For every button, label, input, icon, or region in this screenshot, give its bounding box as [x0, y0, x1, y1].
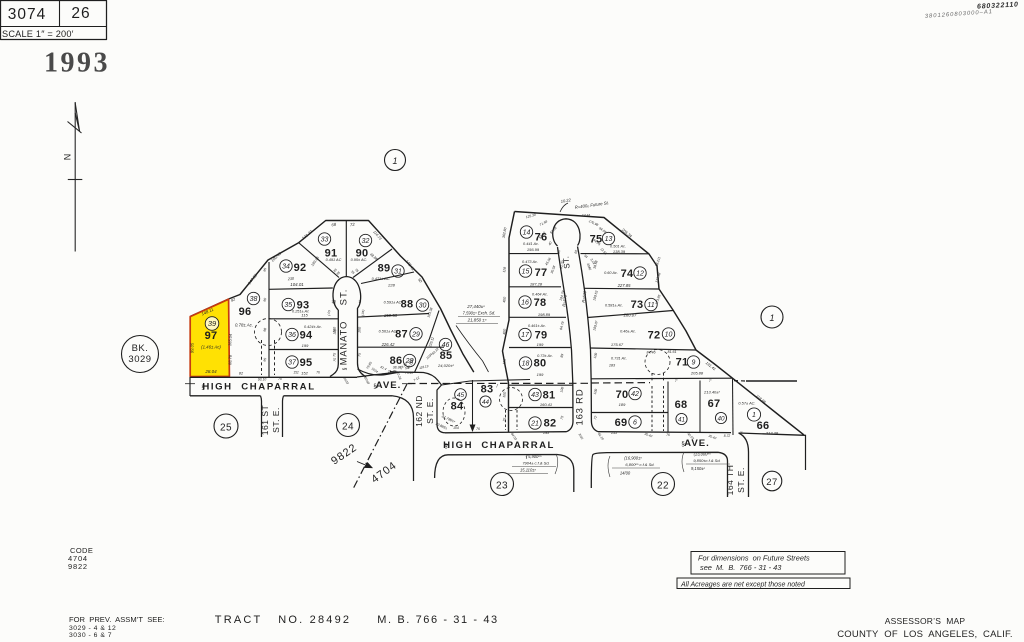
svg-text:(.05: (.05	[327, 310, 331, 316]
svg-text:160.41: 160.41	[540, 402, 552, 407]
svg-text:78: 78	[534, 297, 547, 309]
svg-text:⌈: ⌈	[496, 383, 498, 388]
svg-text:30.58: 30.58	[550, 265, 557, 274]
svg-text:199: 199	[302, 343, 309, 348]
svg-text:60: 60	[557, 250, 562, 254]
svg-text:213.40±ⁿ: 213.40±ⁿ	[703, 390, 720, 395]
svg-text:35: 35	[284, 302, 292, 309]
svg-text:75: 75	[560, 415, 565, 420]
svg-text:R=400₀ Future St.: R=400₀ Future St.	[574, 200, 609, 210]
svg-text:161.41: 161.41	[705, 361, 717, 371]
svg-text:82: 82	[239, 372, 244, 376]
svg-text:0.473 Ac.: 0.473 Ac.	[522, 260, 538, 264]
svg-text:45.06: 45.06	[544, 257, 552, 266]
svg-text:73.40: 73.40	[405, 371, 413, 375]
svg-text:95: 95	[263, 358, 268, 363]
svg-text:400: 400	[502, 297, 507, 303]
svg-text:17: 17	[521, 332, 530, 339]
svg-text:3030 - 6 & 7: 3030 - 6 & 7	[69, 632, 112, 639]
svg-text:15: 15	[522, 269, 530, 276]
svg-text:45: 45	[457, 392, 465, 399]
svg-text:88.78: 88.78	[227, 354, 233, 365]
svg-text:13: 13	[605, 236, 613, 243]
svg-text:99.05: 99.05	[190, 342, 195, 353]
svg-text:100: 100	[502, 392, 507, 398]
svg-text:226.42: 226.42	[381, 342, 395, 347]
svg-text:118.19: 118.19	[419, 364, 429, 370]
svg-text:212.38: 212.38	[765, 431, 779, 436]
svg-text:ST. E.: ST. E.	[271, 407, 281, 433]
svg-text:68: 68	[331, 222, 337, 228]
svg-text:92: 92	[294, 262, 307, 274]
svg-text:16: 16	[521, 300, 529, 307]
svg-text:104: 104	[453, 426, 459, 430]
svg-text:§: §	[343, 367, 349, 370]
svg-text:3029 - 4 & 12: 3029 - 4 & 12	[69, 625, 116, 632]
svg-text:100: 100	[502, 359, 507, 365]
svg-text:❴5,900ⁿⁿ: ❴5,900ⁿⁿ	[525, 454, 542, 459]
svg-text:COUNTY OF LOS ANGELES, CAL: COUNTY OF LOS ANGELES, CALIF.	[837, 629, 1013, 640]
svg-text:36: 36	[288, 332, 296, 339]
svg-text:(1.46± Ac): (1.46± Ac)	[201, 345, 221, 350]
svg-text:89: 89	[378, 263, 391, 275]
svg-text:72: 72	[593, 415, 598, 420]
svg-text:8½0: 8½0	[578, 433, 585, 441]
svg-text:14.44: 14.44	[582, 214, 590, 218]
svg-text:24: 24	[342, 422, 354, 433]
svg-text:189: 189	[619, 402, 626, 407]
svg-text:96: 96	[239, 306, 252, 318]
svg-text:81.4: 81.4	[380, 365, 388, 371]
svg-text:0.581± Ac.: 0.581± Ac.	[605, 304, 623, 308]
svg-text:1034: 1034	[371, 367, 379, 374]
svg-text:0.561± AC.: 0.561± AC.	[379, 330, 398, 334]
svg-text:175.67: 175.67	[611, 342, 624, 347]
svg-text:FOR PREV. ASSM’T SEE:: FOR PREV. ASSM’T SEE:	[69, 615, 165, 624]
svg-text:9: 9	[692, 360, 696, 367]
svg-text:28.04: 28.04	[204, 369, 217, 374]
svg-text:205.88: 205.88	[690, 371, 704, 376]
svg-text:ST.: ST.	[339, 289, 350, 306]
svg-text:§: §	[444, 444, 447, 450]
svg-text:40: 40	[717, 415, 725, 422]
svg-text:0.46± Ac.: 0.46± Ac.	[620, 330, 636, 334]
svg-text:81.61: 81.61	[668, 350, 677, 354]
svg-text:187.28: 187.28	[530, 282, 543, 287]
svg-text:280.07: 280.07	[623, 313, 637, 318]
svg-text:75: 75	[502, 418, 507, 423]
svg-text:0.424± Ac.: 0.424± Ac.	[304, 325, 322, 329]
svg-text:199: 199	[537, 342, 544, 347]
svg-text:0.591± AC.: 0.591± AC.	[384, 301, 403, 305]
svg-text:6,800ⁿⁿ c.f.& Sd.: 6,800ⁿⁿ c.f.& Sd.	[625, 462, 654, 467]
svg-text:26: 26	[71, 5, 90, 22]
svg-text:27,440±ⁿ: 27,440±ⁿ	[466, 304, 485, 309]
svg-text:40: 40	[358, 300, 362, 304]
svg-text:164 TH: 164 TH	[725, 465, 735, 496]
svg-text:81.19: 81.19	[597, 432, 605, 441]
svg-text:ST. E.: ST. E.	[736, 467, 746, 493]
svg-text:7904± c.f.& Sd.: 7904± c.f.& Sd.	[522, 461, 549, 466]
svg-text:33: 33	[321, 237, 329, 244]
svg-text:218.68: 218.68	[754, 393, 767, 404]
svg-text:69: 69	[615, 417, 628, 429]
svg-text:§: §	[201, 385, 204, 391]
svg-text:0.731 Ac.: 0.731 Ac.	[611, 357, 627, 361]
svg-text:N: N	[63, 154, 73, 161]
svg-text:7′: 7′	[675, 379, 678, 383]
svg-text:0.78± Ac.: 0.78± Ac.	[235, 323, 253, 328]
svg-text:All Acreages are net except th: All Acreages are net except those noted	[680, 581, 806, 588]
svg-text:SCALE 1″ = 200′: SCALE 1″ = 200′	[2, 29, 74, 39]
svg-text:34: 34	[282, 264, 290, 271]
svg-text:75: 75	[332, 353, 336, 357]
svg-text:44: 44	[482, 399, 490, 406]
svg-text:3029: 3029	[128, 354, 151, 365]
svg-text:30: 30	[419, 303, 427, 310]
svg-text:100: 100	[593, 388, 598, 395]
svg-text:38: 38	[250, 296, 258, 303]
svg-text:3046: 3046	[586, 263, 592, 271]
svg-text:21,850 ±ⁿ: 21,850 ±ⁿ	[467, 318, 487, 323]
svg-text:39: 39	[208, 319, 217, 328]
svg-text:162 ND: 162 ND	[414, 395, 424, 427]
svg-text:23: 23	[496, 481, 508, 492]
svg-text:(2.58: (2.58	[600, 247, 608, 255]
svg-text:9,150±ⁿ: 9,150±ⁿ	[691, 466, 705, 471]
svg-text:152: 152	[301, 371, 308, 376]
svg-text:9,850±c.f.& Sd.: 9,850±c.f.& Sd.	[693, 458, 720, 463]
svg-text:228: 228	[387, 283, 395, 288]
svg-text:22: 22	[657, 481, 669, 492]
svg-text:71.68: 71.68	[539, 219, 548, 227]
svg-text:18: 18	[522, 361, 530, 368]
svg-text:199: 199	[537, 372, 544, 377]
svg-text:75: 75	[357, 353, 361, 357]
svg-text:72: 72	[350, 222, 356, 228]
svg-text:76: 76	[666, 433, 670, 437]
svg-text:100.07: 100.07	[592, 320, 599, 331]
svg-text:227.85: 227.85	[617, 283, 631, 288]
svg-text:MANATO: MANATO	[339, 321, 349, 365]
svg-text:34: 34	[583, 254, 589, 260]
svg-text:94: 94	[300, 330, 313, 342]
svg-text:362.80: 362.80	[502, 227, 508, 238]
svg-text:71: 71	[676, 357, 689, 369]
svg-text:97: 97	[205, 330, 218, 342]
svg-text:7′: 7′	[709, 379, 712, 383]
svg-text:138.39: 138.39	[613, 249, 626, 254]
svg-text:3801260803000–A1: 3801260803000–A1	[925, 9, 993, 20]
svg-text:230: 230	[287, 277, 296, 282]
svg-text:118: 118	[502, 267, 507, 273]
svg-text:170.98: 170.98	[588, 219, 599, 227]
svg-text:70: 70	[278, 377, 282, 381]
svg-text:79: 79	[535, 330, 548, 342]
svg-text:88.211: 88.211	[655, 256, 662, 267]
svg-text:40: 40	[547, 241, 552, 246]
svg-text:20½8: 20½8	[363, 375, 371, 385]
svg-text:ST. E.: ST. E.	[425, 398, 435, 424]
svg-text:73: 73	[631, 299, 644, 311]
svg-text:116.73: 116.73	[372, 230, 382, 241]
svg-text:143.41: 143.41	[404, 259, 415, 272]
svg-text:29: 29	[411, 331, 420, 338]
svg-text:74: 74	[621, 268, 634, 280]
svg-text:(13,000ⁿⁿ: (13,000ⁿⁿ	[694, 452, 711, 457]
svg-text:10.22: 10.22	[560, 197, 571, 204]
svg-text:183: 183	[609, 364, 616, 368]
svg-text:0.464 Ac.: 0.464 Ac.	[532, 293, 548, 297]
svg-text:165.04: 165.04	[227, 333, 233, 346]
svg-text:83.19: 83.19	[431, 347, 440, 356]
svg-text:163 RD: 163 RD	[575, 388, 586, 425]
svg-text:104.01: 104.01	[290, 282, 304, 287]
svg-text:§: §	[681, 442, 684, 448]
svg-text:83: 83	[481, 384, 494, 396]
svg-text:3′: 3′	[740, 431, 743, 435]
svg-text:For dimensions on Future Stre: For dimensions on Future Streets	[698, 554, 810, 563]
svg-text:152: 152	[293, 371, 299, 375]
svg-text:46: 46	[442, 342, 450, 349]
svg-text:156.99: 156.99	[527, 247, 540, 252]
svg-text:41: 41	[678, 416, 685, 423]
svg-text:24,020±ⁿ: 24,020±ⁿ	[437, 363, 454, 368]
svg-text:see M. B. 766 - 31 - 43: see M. B. 766 - 31 - 43	[700, 563, 782, 572]
svg-text:11: 11	[647, 302, 654, 309]
svg-text:23,885±: 23,885±	[434, 421, 448, 430]
svg-text:M. B. 766 - 31 - 43: M. B. 766 - 31 - 43	[377, 614, 499, 626]
svg-text:0.73± Ac.: 0.73± Ac.	[537, 354, 553, 358]
svg-text:12: 12	[636, 271, 644, 278]
svg-text:42: 42	[631, 391, 639, 398]
svg-text:0.491 AC: 0.491 AC	[326, 258, 342, 262]
svg-text:113.98: 113.98	[655, 272, 662, 283]
svg-text:76: 76	[476, 427, 480, 431]
svg-text:7,590±ⁿ Exch. Sd.: 7,590±ⁿ Exch. Sd.	[463, 311, 496, 316]
svg-text:100: 100	[332, 329, 337, 335]
svg-text:98: 98	[333, 300, 338, 304]
svg-text:AVE.: AVE.	[684, 438, 710, 449]
svg-text:15,110±ⁿ: 15,110±ⁿ	[520, 468, 536, 473]
svg-text:14/00: 14/00	[620, 471, 631, 476]
svg-text:0.461± Ac.: 0.461± Ac.	[528, 324, 546, 328]
svg-text:85: 85	[440, 350, 453, 362]
svg-text:35: 35	[354, 268, 359, 273]
svg-text:93.10: 93.10	[258, 378, 267, 382]
svg-text:173.85: 173.85	[655, 294, 662, 305]
svg-text:80: 80	[534, 358, 547, 370]
svg-text:21: 21	[530, 421, 539, 428]
svg-text:30.40: 30.40	[644, 432, 653, 439]
svg-text:0.60 Ac.: 0.60 Ac.	[604, 271, 618, 275]
svg-text:151: 151	[611, 431, 617, 435]
svg-text:32: 32	[362, 238, 370, 245]
svg-text:43: 43	[531, 392, 539, 399]
svg-text:67: 67	[708, 398, 721, 410]
svg-text:1: 1	[392, 156, 397, 166]
svg-text:72: 72	[648, 330, 661, 342]
svg-text:193: 193	[543, 431, 550, 435]
svg-text:(.04): (.04)	[361, 309, 366, 316]
svg-text:TRACT NO. 28492: TRACT NO. 28492	[215, 614, 351, 626]
svg-text:98: 98	[263, 328, 268, 333]
svg-text:3074: 3074	[8, 6, 46, 23]
svg-text:75: 75	[333, 358, 338, 362]
svg-text:9822: 9822	[329, 442, 359, 468]
svg-text:21,780±ⁿ: 21,780±ⁿ	[440, 414, 456, 424]
svg-text:70: 70	[616, 389, 629, 401]
svg-text:AVE.: AVE.	[376, 380, 402, 391]
svg-text:27: 27	[766, 477, 778, 488]
svg-text:100.53: 100.53	[592, 290, 599, 301]
svg-text:161 ST: 161 ST	[260, 405, 270, 435]
svg-text:125.30: 125.30	[525, 213, 536, 220]
svg-text:198.89: 198.89	[538, 312, 551, 317]
svg-text:115: 115	[301, 313, 308, 318]
svg-text:89: 89	[560, 353, 565, 358]
svg-text:82: 82	[544, 418, 557, 430]
svg-text:§: §	[373, 384, 376, 390]
svg-text:95: 95	[300, 357, 313, 369]
svg-text:9822: 9822	[68, 562, 88, 571]
svg-text:37: 37	[288, 360, 297, 367]
svg-text:HIGH CHAPARRAL: HIGH CHAPARRAL	[443, 440, 555, 451]
svg-text:100: 100	[357, 327, 362, 333]
svg-text:8-72: 8-72	[724, 434, 731, 438]
svg-text:(16,900±ⁿ: (16,900±ⁿ	[624, 456, 642, 461]
svg-text:25: 25	[220, 423, 232, 434]
svg-text:0.501 Ac.: 0.501 Ac.	[610, 245, 626, 249]
svg-text:121.27: 121.27	[301, 229, 314, 241]
svg-text:ASSESSOR’S MAP: ASSESSOR’S MAP	[885, 616, 966, 626]
svg-text:84.79: 84.79	[559, 321, 565, 330]
svg-text:HIGH CHAPARRAL: HIGH CHAPARRAL	[202, 382, 315, 393]
svg-text:14: 14	[523, 230, 531, 237]
svg-text:81: 81	[543, 390, 556, 402]
svg-text:0.95± AC.: 0.95± AC.	[351, 258, 368, 262]
svg-text:77: 77	[535, 267, 548, 279]
svg-text:100: 100	[593, 352, 598, 359]
svg-text:76: 76	[316, 371, 320, 375]
svg-text:10: 10	[665, 332, 673, 339]
svg-text:95: 95	[263, 268, 268, 273]
svg-text:100: 100	[559, 386, 564, 393]
svg-text:1: 1	[769, 313, 774, 323]
svg-text:BK.: BK.	[132, 343, 149, 354]
svg-text:0.441 Ac.: 0.441 Ac.	[523, 242, 539, 246]
svg-text:7-12: 7-12	[413, 376, 421, 383]
svg-text:1: 1	[752, 412, 756, 419]
svg-text:4704: 4704	[369, 459, 399, 485]
svg-text:82: 82	[230, 297, 236, 303]
svg-text:6: 6	[633, 420, 637, 427]
svg-text:68: 68	[675, 399, 688, 411]
svg-text:0.57± AC.: 0.57± AC.	[738, 401, 755, 406]
svg-text:1993: 1993	[44, 48, 110, 79]
svg-text:88: 88	[401, 299, 414, 311]
svg-text:90: 90	[263, 298, 268, 303]
